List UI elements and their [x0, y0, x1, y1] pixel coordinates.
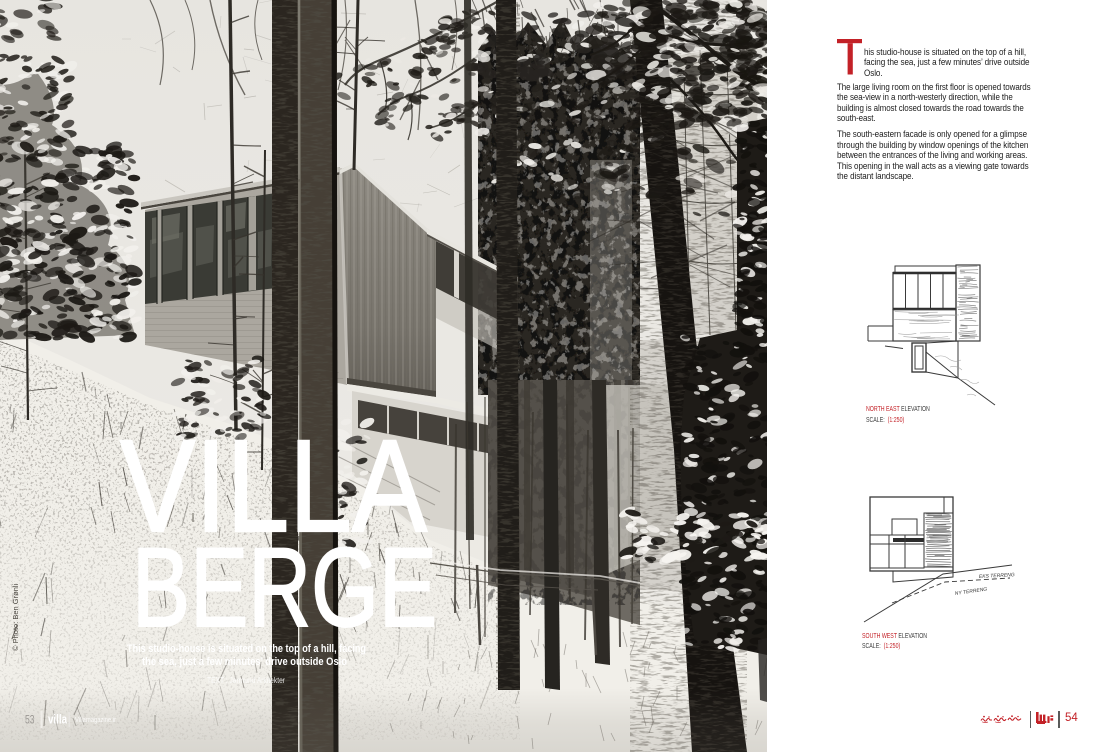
- svg-text:This studio-house is situated: This studio-house is situated on the top…: [127, 643, 366, 655]
- svg-text:© Photo: Ben Grønli: © Photo: Ben Grønli: [11, 583, 20, 651]
- svg-text:the sea, just a few minutes’ d: the sea, just a few minutes’ drive outsi…: [142, 656, 347, 668]
- svg-text:villa: villa: [48, 713, 68, 727]
- svg-text:BERGE: BERGE: [132, 525, 437, 650]
- svg-text:53: 53: [25, 713, 35, 727]
- svg-text:EKS TERRENG: EKS TERRENG: [979, 572, 1015, 580]
- svg-text:Villamagazine.ir: Villamagazine.ir: [75, 715, 116, 724]
- svg-text:TEXT : Jarmund Arkitekter: TEXT : Jarmund Arkitekter: [207, 676, 285, 685]
- svg-text:NY TERRENG: NY TERRENG: [954, 586, 987, 597]
